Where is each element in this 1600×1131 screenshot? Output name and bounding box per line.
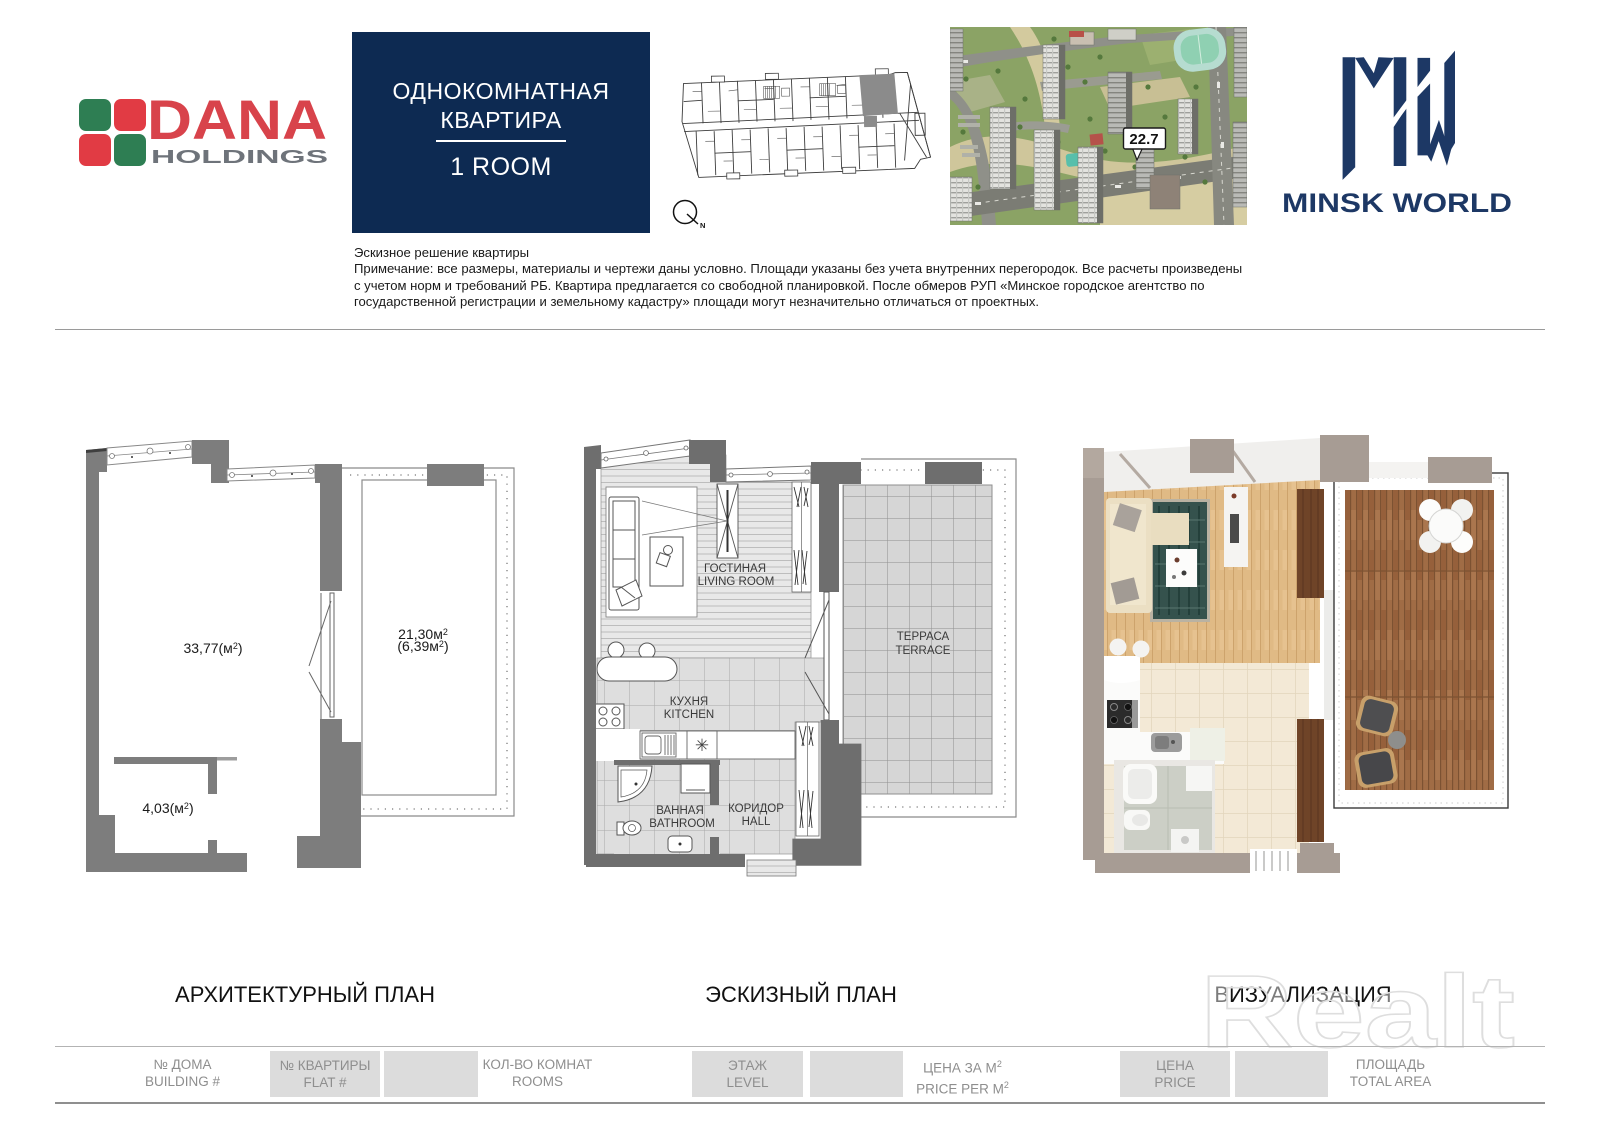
svg-text:KITCHEN: KITCHEN [664,709,714,721]
svg-text:BATHROOM: BATHROOM [649,818,715,830]
svg-text:✳: ✳ [695,736,709,755]
svg-text:DANA: DANA [147,93,327,145]
svg-text:TERRACE: TERRACE [896,645,951,657]
svg-text:КОРИДОР: КОРИДОР [728,803,784,815]
svg-text:4,03(м2): 4,03(м2) [142,800,193,816]
svg-text:ГОСТИНАЯ: ГОСТИНАЯ [704,563,766,575]
svg-text:MINSK WORLD: MINSK WORLD [1282,188,1512,218]
svg-text:HOLDINGS: HOLDINGS [151,148,328,166]
svg-text:33,77(м2): 33,77(м2) [183,640,242,656]
svg-text:ВАННАЯ: ВАННАЯ [656,805,704,817]
svg-text:Realt: Realt [1200,955,1515,1060]
svg-text:КУХНЯ: КУХНЯ [670,696,708,708]
svg-text:LIVING ROOM: LIVING ROOM [698,576,775,588]
svg-text:HALL: HALL [742,816,771,828]
svg-text:22.7: 22.7 [1129,131,1158,148]
svg-text:ТЕРРАСА: ТЕРРАСА [897,631,950,643]
svg-text:N: N [700,221,705,230]
svg-text:(6,39м2): (6,39м2) [397,638,448,654]
